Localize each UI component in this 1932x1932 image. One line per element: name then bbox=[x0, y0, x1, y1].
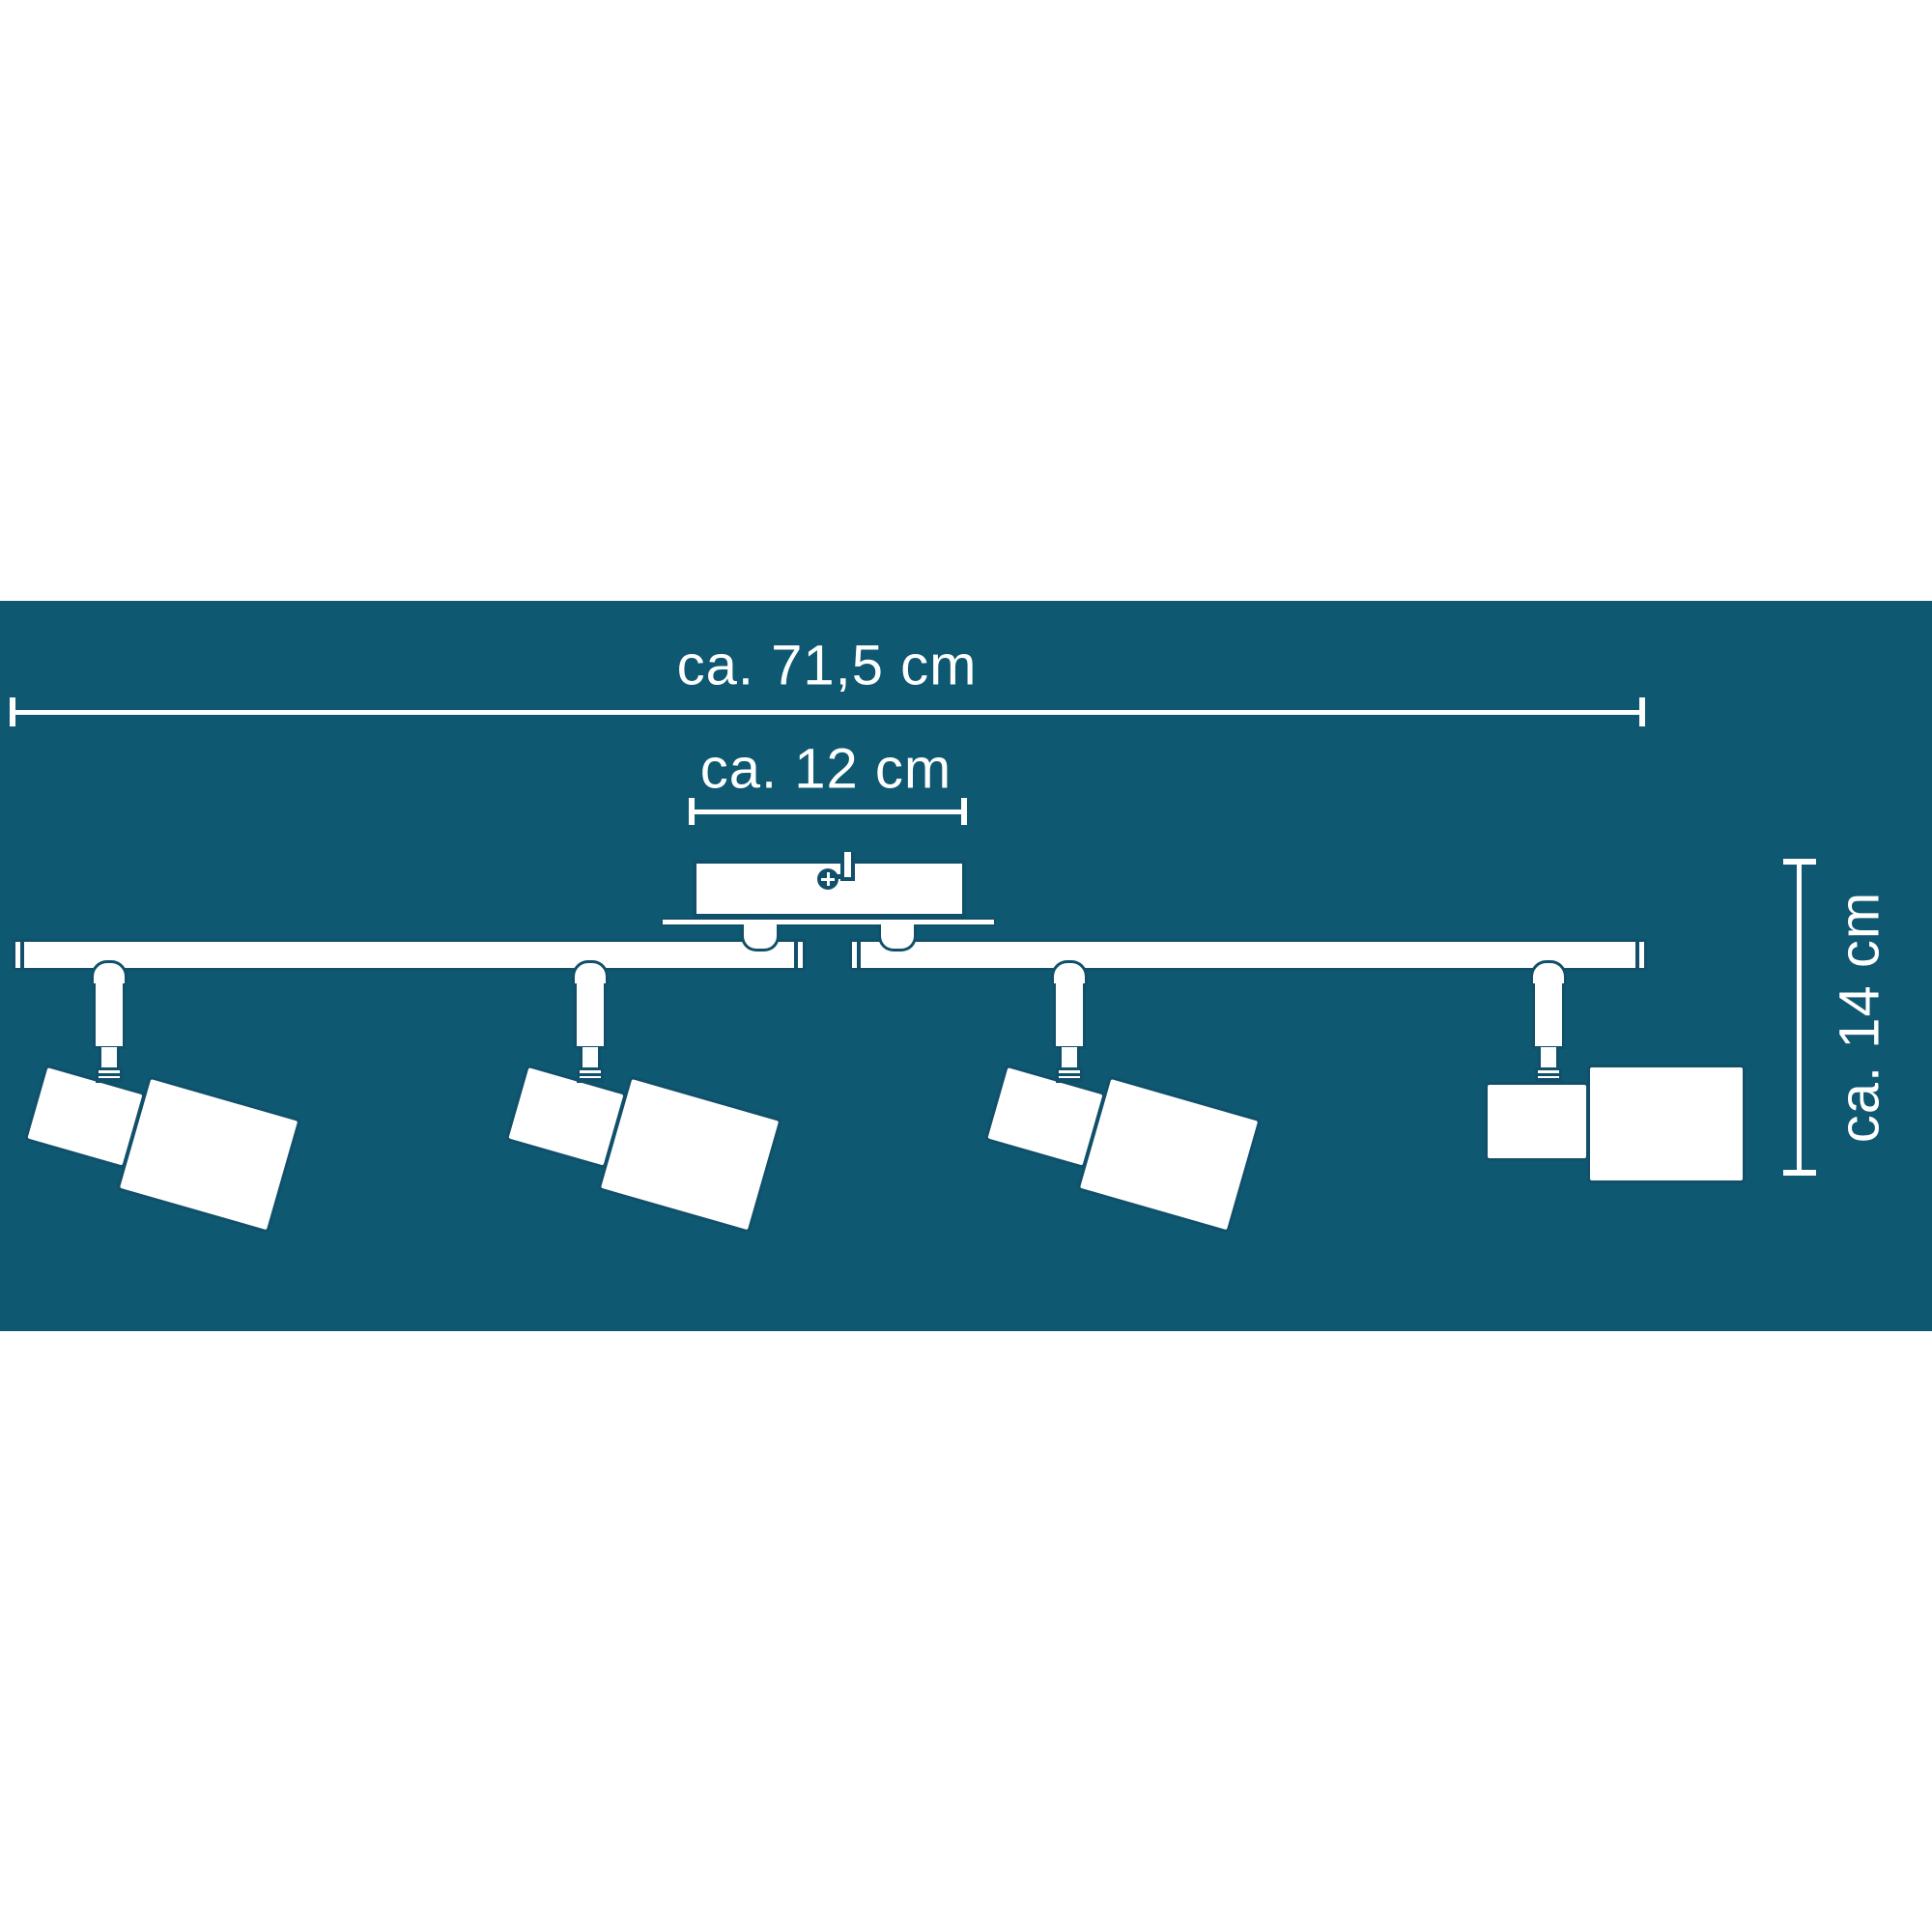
canopy-dimension-label: ca. 12 cm bbox=[700, 737, 952, 802]
width-dimension-line bbox=[12, 710, 1642, 715]
spotlight-1 bbox=[0, 956, 244, 1246]
spotlight-4-heads bbox=[1485, 1063, 1765, 1207]
spot-swivel-joint bbox=[577, 1067, 604, 1083]
spot-head-large bbox=[1587, 1065, 1746, 1183]
canopy-screw-icon bbox=[817, 868, 838, 890]
width-dimension-label: ca. 71,5 cm bbox=[677, 634, 978, 698]
canopy-dimension-line bbox=[691, 810, 964, 814]
height-dimension-tick-bottom bbox=[1783, 1170, 1816, 1176]
bar-end-cap bbox=[794, 942, 798, 968]
spot-head-small bbox=[1485, 1082, 1589, 1161]
spotlight-4 bbox=[1413, 956, 1684, 1246]
spotlight-2 bbox=[455, 956, 725, 1246]
track-bar-left bbox=[13, 939, 806, 971]
spot-stem bbox=[1532, 983, 1565, 1049]
spot-stem bbox=[93, 983, 126, 1049]
spotlight-3 bbox=[934, 956, 1205, 1246]
spot-mount-cap bbox=[572, 960, 609, 986]
spot-mount-cap bbox=[91, 960, 128, 986]
spot-stem bbox=[574, 983, 607, 1049]
track-bar-right bbox=[849, 939, 1647, 971]
bar-end-cap bbox=[1635, 942, 1639, 968]
height-dimension-label: ca. 14 cm bbox=[1828, 892, 1892, 1143]
spot-swivel-joint bbox=[1056, 1067, 1083, 1083]
spot-swivel-joint bbox=[96, 1067, 123, 1083]
bar-end-cap bbox=[20, 942, 24, 968]
width-dimension-tick-right bbox=[1639, 697, 1645, 726]
bar-pivot-right bbox=[878, 924, 917, 952]
bar-pivot-left bbox=[741, 924, 780, 952]
spot-mount-cap bbox=[1530, 960, 1567, 986]
spot-mount-cap bbox=[1051, 960, 1088, 986]
width-dimension-tick-left bbox=[10, 697, 15, 726]
bar-end-cap bbox=[857, 942, 861, 968]
height-dimension-line bbox=[1797, 863, 1802, 1174]
canopy-dimension-tick-right bbox=[961, 798, 967, 825]
spot-swivel-joint bbox=[1535, 1067, 1562, 1083]
product-dimension-diagram: ca. 71,5 cm ca. 12 cm ca. 14 cm bbox=[0, 0, 1932, 1932]
canopy-dimension-tick-left bbox=[689, 798, 695, 825]
spot-stem bbox=[1053, 983, 1086, 1049]
canopy-base-plate bbox=[661, 918, 996, 926]
